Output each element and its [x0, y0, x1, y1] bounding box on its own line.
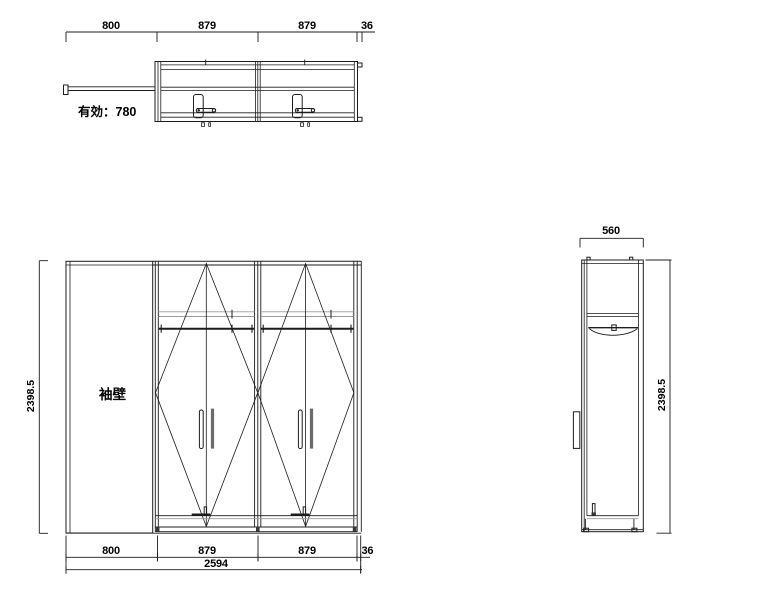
bracket-arc [589, 329, 637, 336]
plan-dim-879a: 879 [182, 21, 232, 32]
wall-end-cap [64, 85, 69, 95]
side-base-lines [582, 516, 644, 530]
front-height-dimension-line [39, 261, 48, 534]
side-base [582, 516, 644, 532]
floor-stopper-details [192, 507, 310, 515]
stopper-base [592, 512, 596, 515]
side-hanger-bracket [588, 325, 638, 335]
side-cabinet-outline [582, 260, 644, 532]
side-door-handle [573, 412, 579, 449]
side-width-dimension-line [580, 238, 643, 247]
plan-cabinet [155, 60, 362, 127]
front-dim-800: 800 [86, 546, 136, 557]
front-dim-879b: 879 [282, 546, 332, 557]
side-width-dim: 560 [586, 226, 636, 237]
cabinet-top-lines [153, 261, 362, 265]
base-foot [156, 527, 160, 532]
end-filler-tab-top [358, 63, 363, 67]
stopper-pin-left [204, 507, 206, 515]
side-top-tab [587, 257, 590, 260]
stopper-pin-right [303, 507, 305, 515]
door-handle-bar [298, 410, 302, 449]
base-foot [353, 527, 357, 532]
effective-width-label: 有効：780 [78, 101, 136, 120]
side-height-dim: 2398.5 [656, 355, 668, 435]
end-filler-tab-bottom [358, 117, 363, 121]
plan-wall-bar [64, 85, 156, 95]
front-dim-879a: 879 [182, 546, 232, 557]
side-verticals [584, 260, 638, 532]
plan-door-handle-left [194, 95, 216, 118]
wall-lines [68, 87, 155, 91]
door-handle-bar [310, 409, 313, 449]
base-foot [256, 527, 260, 532]
front-height-dim: 2398.5 [25, 356, 37, 436]
cad-linework [0, 0, 758, 612]
front-door-handles [199, 409, 313, 449]
plan-dimension-line [66, 32, 375, 42]
front-elevation [39, 261, 370, 574]
cabinet-base [66, 516, 361, 534]
shelf-support-ticks [232, 310, 331, 319]
side-shelf-lines [587, 313, 639, 316]
cad-drawing-sheet: 800 879 879 36 有効：780 袖壁 2398.5 2398.5 5… [0, 0, 758, 612]
cabinet-verticals [155, 261, 361, 531]
hinge-marks [202, 123, 310, 127]
handle-pivot [198, 109, 200, 111]
front-dim-36: 36 [362, 546, 378, 557]
door-handle-bar [211, 409, 214, 449]
plan-dim-36: 36 [361, 21, 377, 32]
plan-door-handle-right [293, 95, 315, 118]
handle-backplate [293, 95, 303, 118]
side-floor-stopper [592, 504, 596, 516]
plan-dim-879b: 879 [282, 21, 332, 32]
handle-backplate [194, 95, 204, 118]
plan-dim-800: 800 [86, 21, 136, 32]
handle-pivot [297, 109, 299, 111]
front-total-dim: 2594 [191, 559, 241, 570]
sleeve-wall-label: 袖壁 [99, 383, 126, 403]
door-handle-bar [199, 410, 203, 449]
side-top-tab [630, 257, 633, 260]
